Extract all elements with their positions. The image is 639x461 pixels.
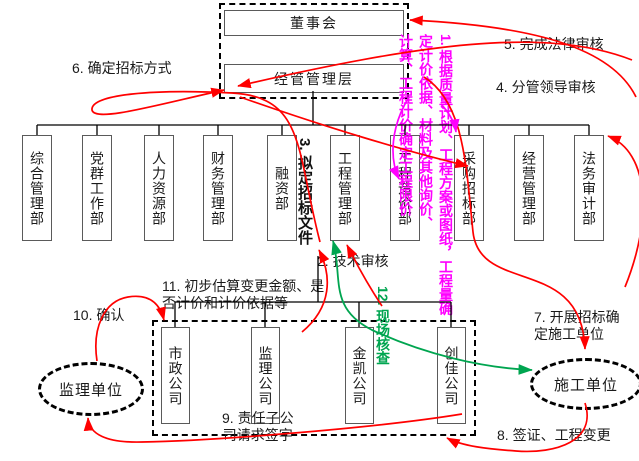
department-box-financing: 融资部: [267, 135, 297, 241]
subsidiary-label: 金凯公司: [350, 346, 370, 406]
department-box-engineering-mgmt: 工程管理部: [330, 135, 360, 241]
annotation-9-line1: 9. 责任子公: [222, 410, 294, 427]
department-label: 采购招标部: [459, 151, 479, 226]
subsidiary-label: 市政公司: [166, 346, 186, 406]
department-box-operations: 经营管理部: [514, 135, 544, 241]
annotation-4-leader-review: 4. 分管领导审核: [496, 79, 596, 96]
annotation-9-line2: 司请求签字: [222, 427, 294, 444]
annotation-1-col1: 1. 根据质量计划、工程方案或图纸，工程量确: [436, 34, 456, 334]
subsidiary-label: 监理公司: [256, 346, 276, 406]
annotation-11-line2: 否计价和计价依据等: [162, 295, 324, 312]
annotation-2-technical-review: 2. 技术审核: [317, 253, 389, 270]
annotation-12-site-check: 12. 现场核查: [373, 286, 393, 386]
department-box-general-admin: 综合管理部: [22, 135, 52, 241]
annotation-1-col2: 定计价依据、材料及其他询价、: [416, 34, 436, 334]
annotation-5-legal-review: 5. 完成法律审核: [504, 36, 604, 53]
annotation-11-line1: 11. 初步估算变更金额、是: [162, 278, 324, 295]
department-box-finance: 财务管理部: [203, 135, 233, 241]
annotation-7-line1: 7. 开展招标确: [534, 309, 620, 326]
arrow-4-to-legal-audit: [608, 136, 639, 287]
annotation-7-line2: 定施工单位: [534, 326, 620, 343]
department-box-hr: 人力资源部: [144, 135, 174, 241]
department-label: 法务审计部: [579, 151, 599, 226]
department-label: 人力资源部: [149, 151, 169, 226]
annotation-3-draft-bid-docs: 3. 拟定招标文件: [294, 138, 315, 258]
department-label: 经营管理部: [519, 151, 539, 226]
department-box-legal-audit: 法务审计部: [574, 135, 604, 241]
annotation-11-estimate-change: 11. 初步估算变更金额、是 否计价和计价依据等: [162, 278, 324, 312]
department-label: 融资部: [272, 166, 292, 211]
annotation-1-pricing-basis: 1. 根据质量计划、工程方案或图纸，工程量确 定计价依据、材料及其他询价、 计算…: [396, 34, 456, 334]
subsidiary-box-jinkai: 金凯公司: [345, 327, 374, 424]
annotation-1-col3: 计算、工程计价确定工程限价: [396, 34, 416, 334]
board-of-directors-box: 董事会: [224, 10, 404, 36]
subsidiary-label: 创佳公司: [442, 346, 462, 406]
supervision-unit-label: 监理单位: [59, 379, 123, 400]
subsidiary-box-chuangjia: 创佳公司: [437, 327, 466, 424]
department-box-procurement-bidding: 采购招标部: [454, 135, 484, 241]
org-flow-diagram: 董事会 经管管理层 综合管理部 党群工作部 人力资源部 财务管理部 融资部 工程…: [0, 0, 639, 461]
department-label: 党群工作部: [87, 151, 107, 226]
department-label: 综合管理部: [27, 151, 47, 226]
department-label: 财务管理部: [208, 151, 228, 226]
department-box-party-group: 党群工作部: [82, 135, 112, 241]
annotation-9-request-signature: 9. 责任子公 司请求签字: [222, 410, 294, 444]
annotation-10-confirm: 10. 确认: [73, 307, 124, 324]
subsidiaries-group: [152, 320, 476, 436]
annotation-7-conduct-bidding: 7. 开展招标确 定施工单位: [534, 309, 620, 343]
department-label: 工程管理部: [335, 151, 355, 226]
construction-unit-label: 施工单位: [554, 374, 618, 395]
construction-unit-ellipse: 施工单位: [530, 358, 639, 410]
management-layer-box: 经管管理层: [224, 64, 404, 93]
annotation-6-determine-bid-method: 6. 确定招标方式: [72, 60, 172, 77]
supervision-unit-ellipse: 监理单位: [38, 362, 144, 416]
subsidiary-box-shizheng: 市政公司: [161, 327, 190, 424]
management-layer-label: 经管管理层: [274, 69, 354, 89]
annotation-8-visa-change: 8. 签证、工程变更: [497, 427, 611, 444]
board-of-directors-label: 董事会: [290, 13, 338, 33]
